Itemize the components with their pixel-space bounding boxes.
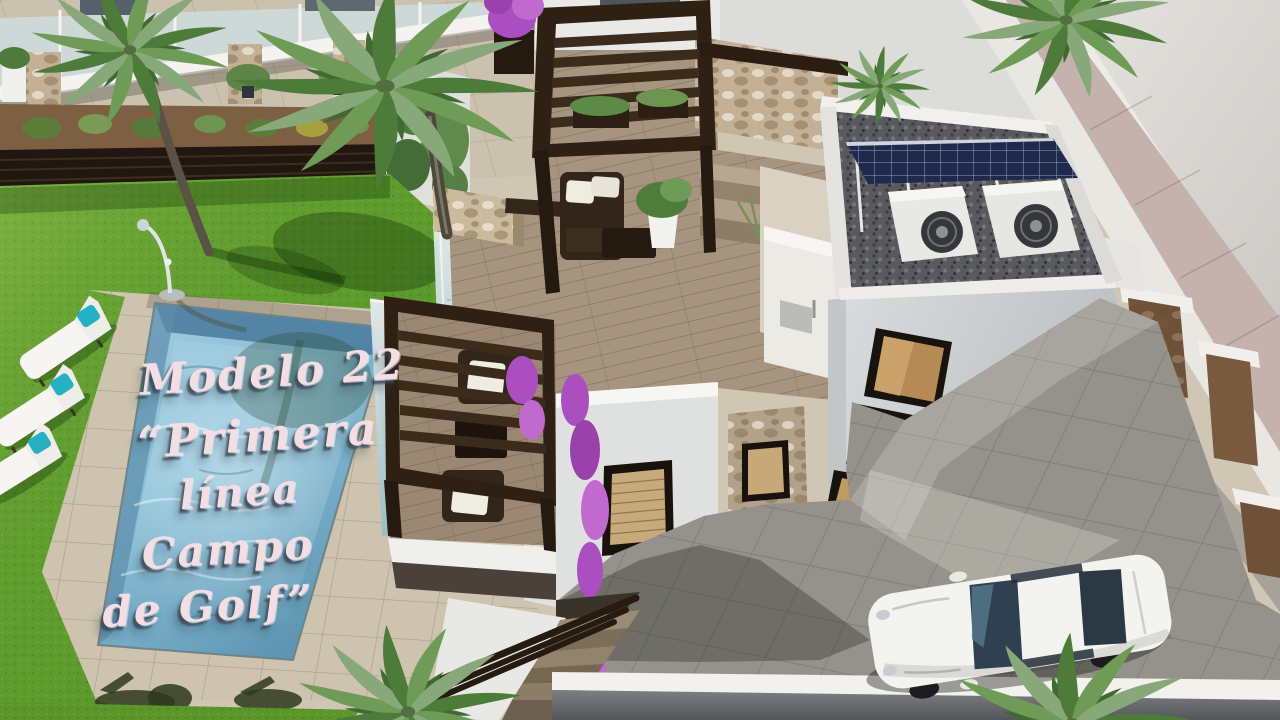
coffee-table — [602, 228, 656, 258]
shower-head — [137, 219, 149, 231]
neighbor-opening — [305, 0, 375, 11]
villa-render: Modelo 22 “Primera línea Campo de Golf” — [0, 0, 1280, 720]
watermark-line-3: línea — [178, 465, 301, 519]
ac-unit — [888, 186, 978, 262]
